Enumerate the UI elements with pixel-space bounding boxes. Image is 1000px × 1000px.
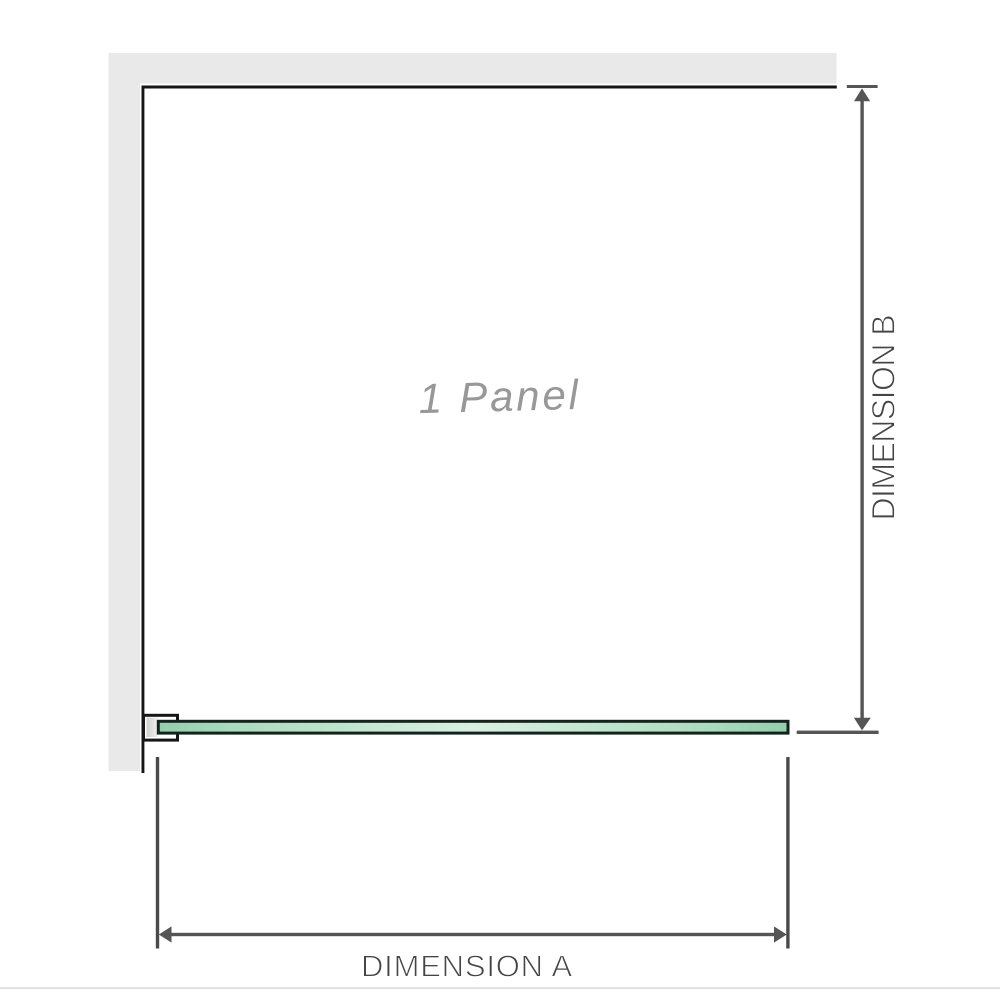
svg-text:DIMENSION A: DIMENSION A — [361, 948, 573, 983]
svg-text:1 Panel: 1 Panel — [418, 371, 581, 422]
svg-text:DIMENSION B: DIMENSION B — [865, 315, 901, 521]
